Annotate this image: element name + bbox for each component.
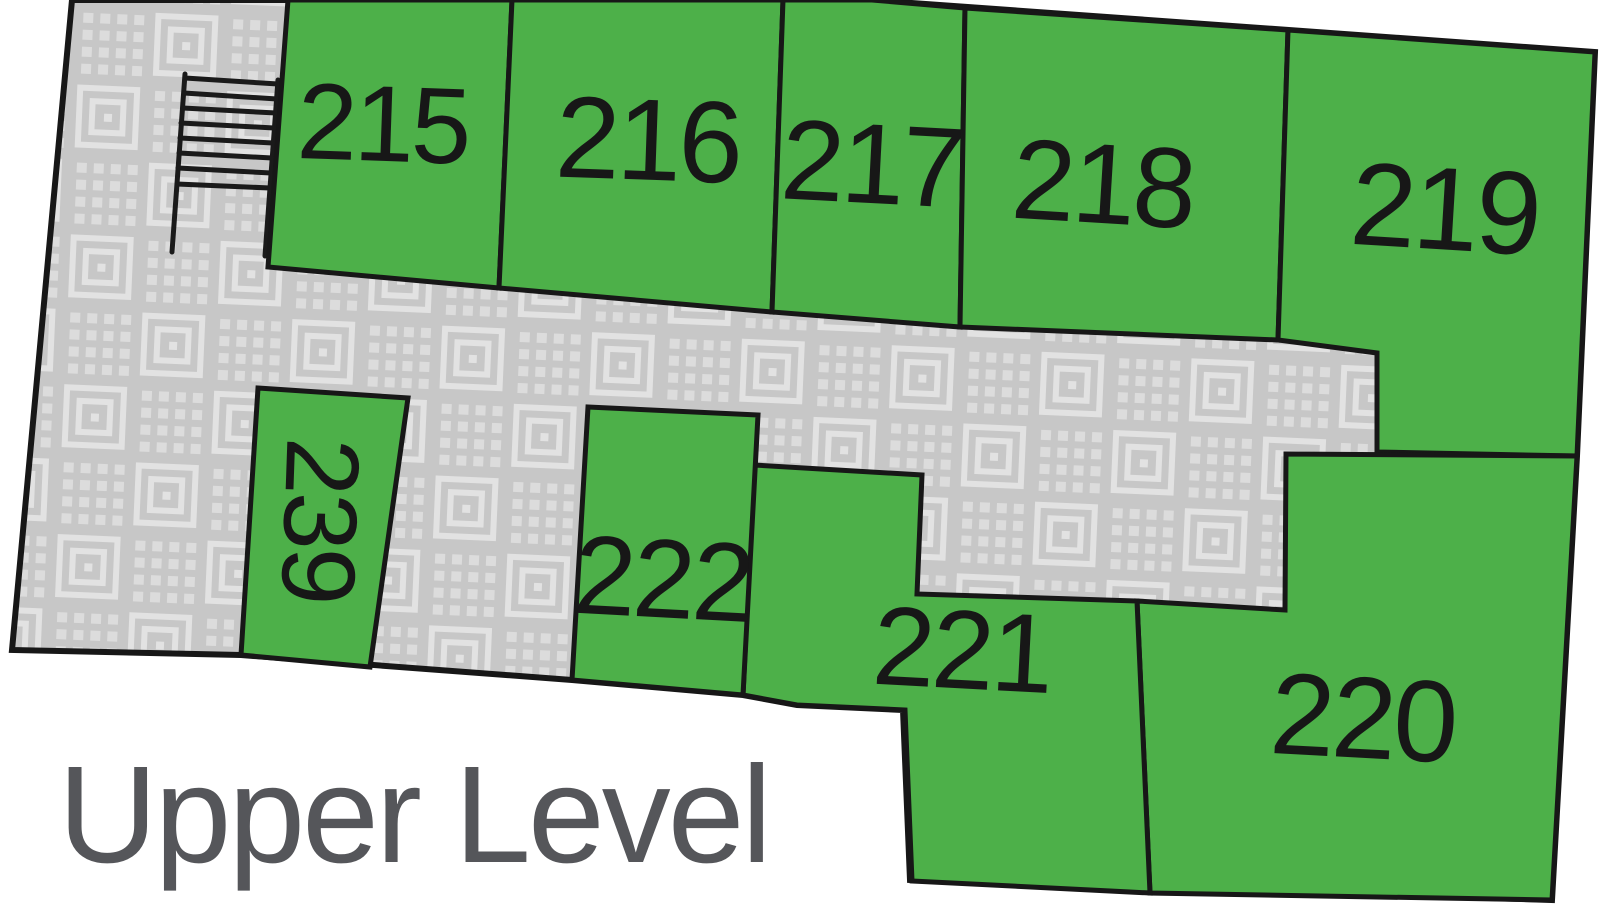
floor-plan-map: 215 216 217 218 219 220	[0, 0, 1600, 914]
room-216-label: 216	[553, 72, 742, 208]
room-219-label: 219	[1347, 138, 1543, 281]
room-215: 215	[268, 0, 512, 288]
room-218: 218	[960, 8, 1288, 340]
room-239-label: 239	[259, 436, 381, 604]
room-217-label: 217	[778, 96, 966, 232]
room-217: 217	[772, 0, 966, 327]
room-221-label: 221	[870, 583, 1054, 717]
level-title: Upper Level	[58, 738, 769, 892]
room-216: 216	[499, 0, 783, 312]
room-222: 222	[571, 407, 758, 695]
room-218-label: 218	[1009, 116, 1198, 254]
room-220-label: 220	[1267, 648, 1458, 787]
room-222-label: 222	[571, 512, 755, 646]
floor-plan-page: 215 216 217 218 219 220	[0, 0, 1600, 914]
room-215-label: 215	[295, 60, 470, 187]
